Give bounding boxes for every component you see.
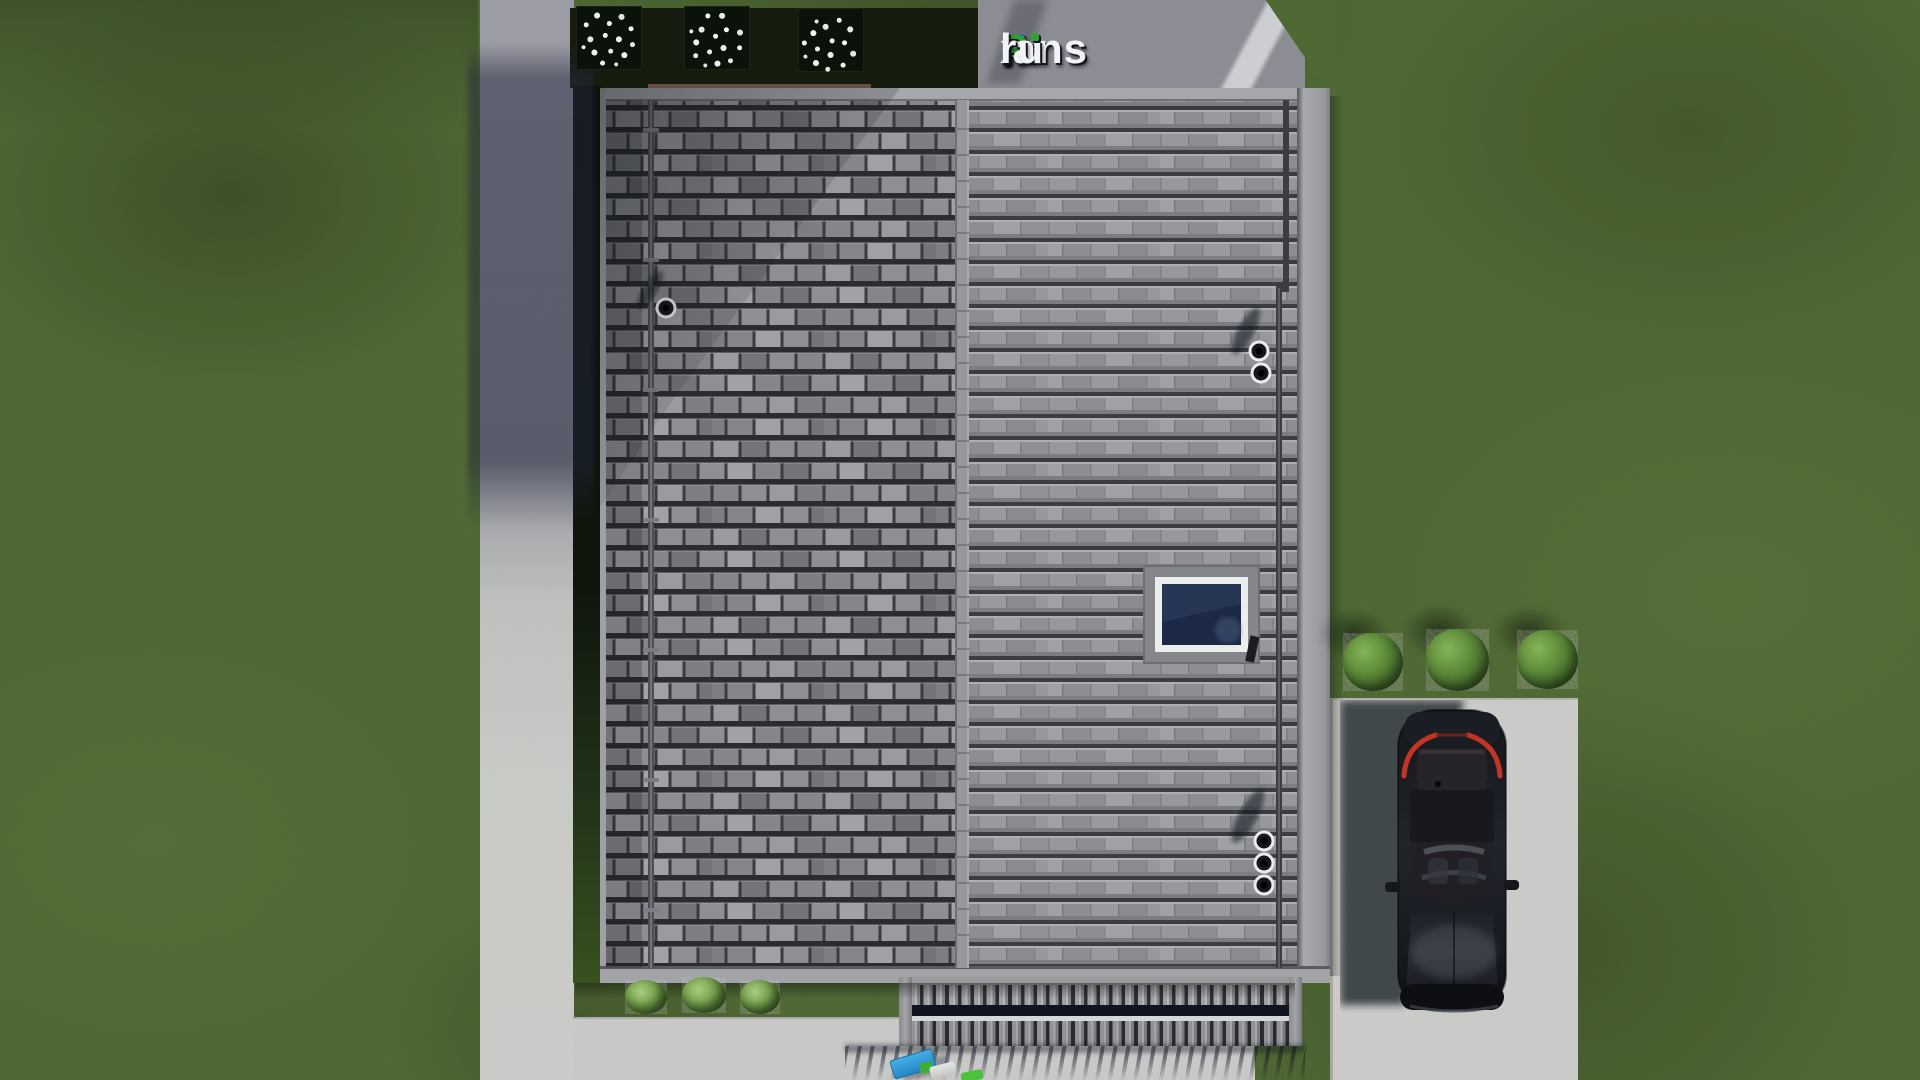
render-stage: FixPlans.ru — [0, 0, 1920, 1080]
roof-ridge — [955, 100, 969, 968]
grass-top-shade — [0, 0, 478, 130]
logo-i-green-dot — [1031, 33, 1039, 41]
house-shadow-on-path — [468, 44, 594, 530]
white-flower-cluster — [574, 5, 642, 71]
car-mirror-right — [1504, 880, 1519, 890]
roof-skylight — [1143, 565, 1260, 664]
car-rear-window — [1416, 748, 1488, 790]
roof-right-fascia — [1297, 88, 1330, 983]
logo-letters-ru: ru — [1000, 24, 1044, 74]
parked-car — [1340, 700, 1580, 1020]
bush-small — [625, 980, 667, 1014]
car-mirror-left — [1385, 882, 1400, 892]
house-roof — [600, 88, 1330, 983]
bush-small — [740, 980, 780, 1014]
roof-right-slope — [969, 100, 1297, 968]
bush — [1343, 633, 1403, 691]
bush — [1426, 629, 1489, 691]
bush — [1517, 630, 1578, 689]
pergola-slats-row — [909, 1021, 1292, 1046]
bush-small — [682, 977, 726, 1013]
car-roof — [1410, 790, 1494, 842]
